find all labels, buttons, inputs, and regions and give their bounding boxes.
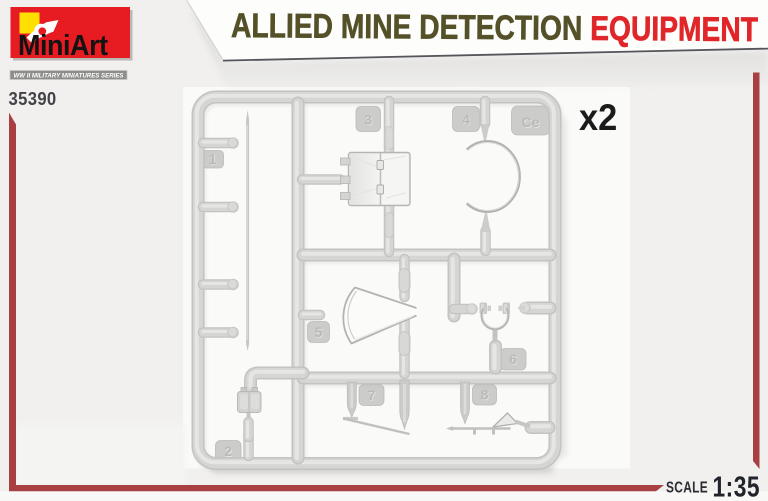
svg-text:6: 6 <box>509 351 517 367</box>
svg-text:3: 3 <box>364 112 372 128</box>
svg-text:4: 4 <box>462 112 470 128</box>
svg-text:2: 2 <box>224 443 232 459</box>
svg-text:SCALE: SCALE <box>666 479 708 496</box>
svg-text:5: 5 <box>315 324 323 340</box>
svg-text:1:35: 1:35 <box>713 472 761 501</box>
svg-text:7: 7 <box>368 387 376 403</box>
svg-text:ALLIED MINE DETECTION EQUIPMEN: ALLIED MINE DETECTION EQUIPMENT <box>231 6 758 48</box>
svg-text:35390: 35390 <box>9 88 57 109</box>
svg-text:x2: x2 <box>579 97 617 138</box>
svg-text:Ce: Ce <box>522 114 540 130</box>
svg-text:1: 1 <box>209 151 217 167</box>
svg-text:WW II MILITARY MINIATURES SERI: WW II MILITARY MINIATURES SERIES <box>14 73 125 80</box>
svg-text:8: 8 <box>481 387 489 403</box>
svg-text:MiniArt: MiniArt <box>18 29 108 61</box>
